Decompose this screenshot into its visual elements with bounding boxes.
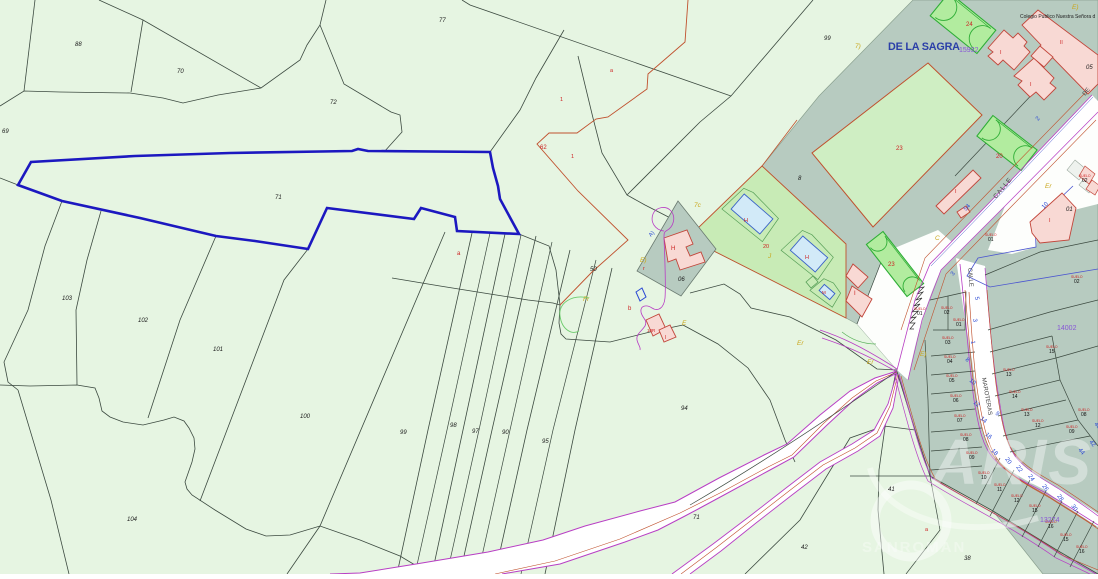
svg-text:10: 10: [981, 475, 987, 481]
svg-text:DE LA SAGRA: DE LA SAGRA: [888, 41, 960, 53]
svg-text:03: 03: [945, 340, 951, 346]
svg-text:Er: Er: [797, 340, 804, 347]
svg-text:41: 41: [888, 487, 895, 493]
svg-text:06: 06: [678, 277, 685, 283]
svg-text:20: 20: [996, 154, 1003, 160]
svg-text:99: 99: [400, 430, 407, 436]
svg-text:01: 01: [988, 237, 994, 243]
svg-text:05: 05: [949, 378, 955, 384]
svg-text:62: 62: [540, 145, 547, 151]
svg-text:104: 104: [127, 517, 138, 523]
svg-text:99: 99: [824, 36, 831, 42]
svg-text:71: 71: [275, 195, 282, 201]
svg-text:15: 15: [1032, 508, 1038, 514]
svg-text:7c: 7c: [694, 202, 702, 209]
svg-text:1: 1: [560, 97, 563, 103]
svg-text:38: 38: [964, 556, 971, 562]
svg-text:88: 88: [75, 42, 82, 48]
svg-text:01: 01: [917, 311, 923, 317]
svg-text:70: 70: [177, 69, 184, 75]
svg-text:SANROMAN: SANROMAN: [862, 539, 966, 556]
svg-text:H: H: [744, 218, 748, 224]
svg-text:E): E): [920, 351, 927, 358]
svg-text:01: 01: [956, 322, 962, 328]
svg-text:14: 14: [1012, 394, 1018, 400]
svg-text:Er: Er: [1045, 183, 1052, 190]
svg-text:08: 08: [1081, 412, 1087, 418]
svg-text:98: 98: [450, 423, 457, 429]
svg-text:01: 01: [1066, 207, 1073, 213]
svg-text:14002: 14002: [1057, 325, 1077, 332]
svg-text:100: 100: [300, 414, 311, 420]
svg-text:20: 20: [763, 244, 769, 250]
svg-text:94: 94: [681, 406, 688, 412]
svg-text:02: 02: [944, 310, 950, 316]
svg-text:13274: 13274: [1040, 517, 1060, 524]
svg-text:E: E: [682, 320, 687, 327]
svg-text:07: 07: [957, 418, 963, 424]
svg-text:02: 02: [1082, 178, 1088, 184]
svg-text:7): 7): [855, 43, 861, 50]
svg-text:Colegio Publico Nuestra Señora: Colegio Publico Nuestra Señora d: [1020, 14, 1096, 20]
svg-text:16: 16: [1079, 549, 1085, 555]
svg-text:95: 95: [542, 439, 549, 445]
svg-text:23: 23: [896, 146, 903, 152]
svg-text:77: 77: [439, 18, 446, 24]
svg-text:42: 42: [801, 545, 808, 551]
svg-text:C: C: [935, 235, 940, 242]
svg-text:71: 71: [693, 515, 700, 521]
svg-text:06: 06: [953, 398, 959, 404]
svg-text:Er: Er: [867, 359, 874, 366]
svg-text:05: 05: [1086, 65, 1093, 71]
svg-text:90: 90: [502, 430, 509, 436]
svg-text:23: 23: [888, 262, 895, 268]
svg-text:50: 50: [590, 267, 597, 273]
svg-text:16: 16: [1048, 524, 1054, 530]
svg-text:101: 101: [213, 347, 223, 353]
svg-text:12: 12: [1035, 423, 1041, 429]
svg-text:97: 97: [472, 429, 479, 435]
svg-text:69: 69: [2, 129, 9, 135]
svg-text:E): E): [640, 257, 647, 264]
svg-text:02: 02: [1074, 279, 1080, 285]
svg-text:15: 15: [1049, 349, 1055, 355]
svg-text:I: I: [665, 335, 666, 341]
svg-text:09: 09: [969, 455, 975, 461]
svg-text:15: 15: [1063, 537, 1069, 543]
svg-text:10R: 10R: [647, 328, 656, 333]
svg-text:09: 09: [1069, 429, 1075, 435]
svg-text:11: 11: [997, 487, 1002, 493]
svg-text:r: r: [643, 266, 645, 272]
svg-text:72: 72: [330, 100, 337, 106]
svg-text:II: II: [1060, 40, 1063, 46]
svg-text:13: 13: [1024, 412, 1030, 418]
svg-text:08: 08: [963, 437, 969, 443]
svg-text:13: 13: [1006, 372, 1012, 378]
svg-text:M: M: [822, 290, 826, 295]
svg-text:1: 1: [571, 154, 574, 160]
svg-text:E): E): [1072, 4, 1079, 11]
svg-text:24: 24: [966, 22, 973, 28]
svg-text:H: H: [805, 255, 809, 261]
svg-text:103: 103: [62, 296, 73, 302]
svg-text:Fr: Fr: [583, 296, 590, 303]
svg-text:15932: 15932: [959, 47, 979, 54]
svg-text:04: 04: [947, 359, 953, 365]
svg-text:H: H: [671, 246, 675, 252]
svg-text:12: 12: [1014, 498, 1020, 504]
svg-text:102: 102: [138, 318, 149, 324]
